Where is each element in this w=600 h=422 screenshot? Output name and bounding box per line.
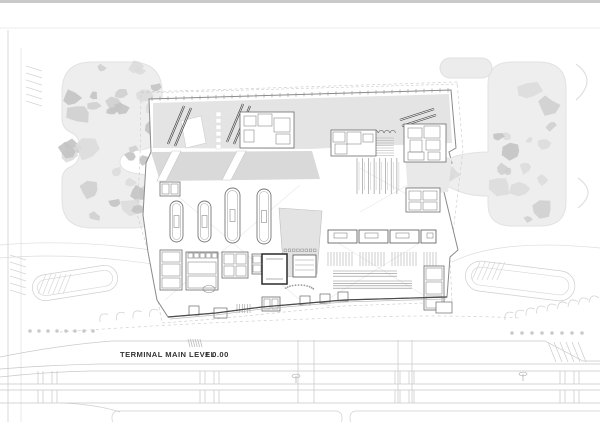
street-tree-dot — [38, 330, 41, 333]
street-tree-dot — [65, 330, 68, 333]
street-tree-dot — [83, 330, 86, 333]
checkin-island — [359, 230, 388, 243]
south-rooms-c — [222, 252, 248, 278]
label-layer: TERMINAL MAIN LEVEL ± 0.00 — [120, 350, 229, 359]
facade-dot — [287, 286, 289, 288]
street-tree-dot — [29, 330, 32, 333]
amphitheater — [293, 255, 316, 277]
south-rooms-d — [252, 254, 262, 274]
street-tree-dot — [511, 332, 514, 335]
facade-dot — [309, 286, 311, 288]
terminal-building — [137, 82, 463, 323]
street-tree-dot — [74, 330, 77, 333]
checkin-island — [328, 230, 357, 243]
facade-dot — [304, 285, 306, 287]
site-plan-sheet: TERMINAL MAIN LEVEL ± 0.00 — [0, 0, 600, 422]
plan-title: TERMINAL MAIN LEVEL — [120, 350, 216, 359]
street-tree-dot — [561, 332, 564, 335]
street-tree-dot — [551, 332, 554, 335]
stand-square — [216, 138, 221, 143]
plan-elevation: ± 0.00 — [205, 350, 229, 359]
street-tree-dot — [92, 330, 95, 333]
facade-dot — [312, 288, 314, 290]
checkin-island — [421, 230, 436, 243]
facade-dot — [311, 287, 313, 289]
baggage-carousel — [170, 201, 183, 242]
facade-dot — [301, 284, 303, 286]
street-tree-dot — [581, 332, 584, 335]
street-tree-dot — [541, 332, 544, 335]
facade-box — [189, 306, 199, 315]
street-tree-dot — [571, 332, 574, 335]
facade-dot — [306, 285, 308, 287]
stand-square — [216, 145, 221, 150]
street-tree-dot — [47, 330, 50, 333]
baggage-carousel — [257, 189, 271, 244]
sheet-top-bar — [0, 0, 600, 3]
stand-square — [216, 112, 221, 117]
facade-box — [436, 302, 452, 313]
facade-dot — [295, 284, 297, 286]
checkin-island — [390, 230, 419, 243]
baggage-carousel — [198, 201, 211, 242]
facade-dot — [292, 285, 294, 287]
street-tree-dot — [56, 330, 59, 333]
south-rooms-a — [160, 250, 182, 290]
facade-dot — [289, 285, 291, 287]
facade-dot — [298, 284, 300, 286]
stand-square — [216, 119, 221, 124]
stand-square — [216, 132, 221, 137]
street-tree-dot — [531, 332, 534, 335]
facade-dot — [285, 287, 287, 289]
core-void — [262, 254, 287, 284]
terminal-site-plan: TERMINAL MAIN LEVEL ± 0.00 — [0, 0, 600, 422]
street-tree-dot — [521, 332, 524, 335]
stand-square — [216, 125, 221, 130]
north-east-path-stub — [440, 58, 492, 78]
